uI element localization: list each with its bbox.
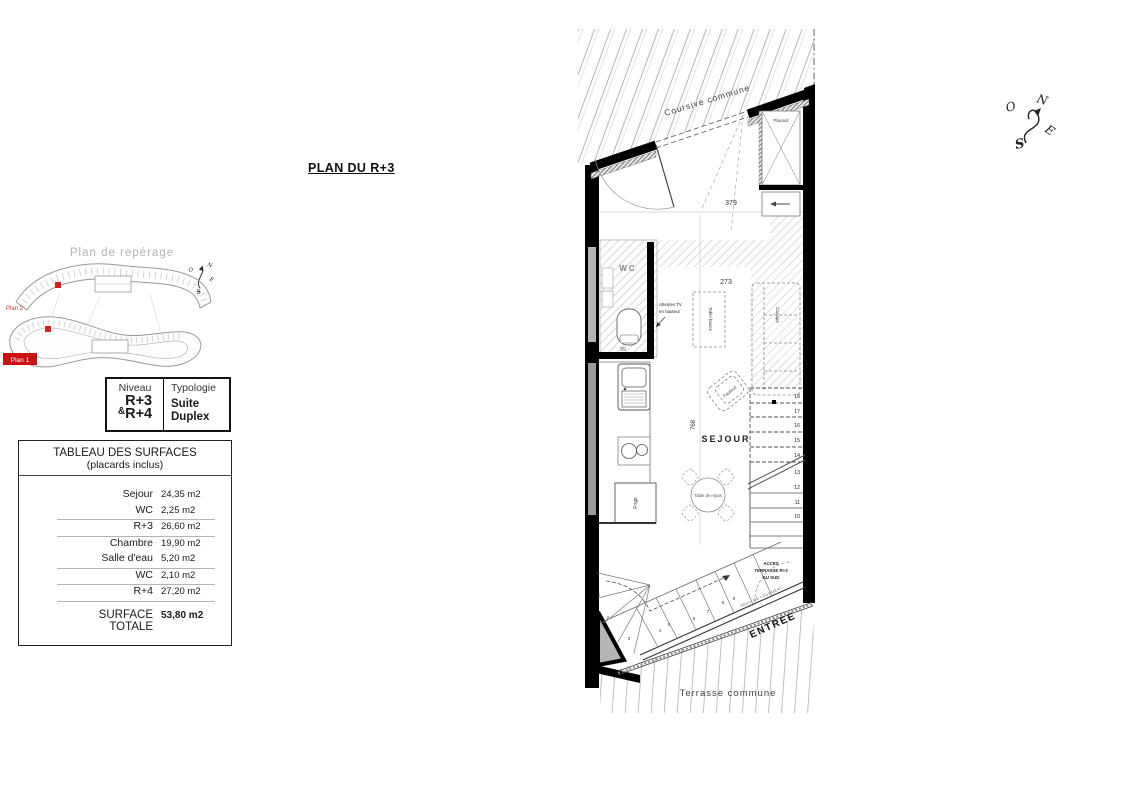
step-number: 9	[733, 596, 736, 602]
entry-door-leaf	[656, 145, 674, 207]
floor-plan: WC 99 Placard	[578, 25, 823, 715]
wc-fixture-shelf	[602, 268, 613, 288]
page-title: PLAN DU R+3	[308, 161, 395, 175]
reperage-mini-plan: Plan de repérage N O E S	[0, 240, 250, 380]
level-ampersand: &	[118, 406, 125, 417]
table-row: Salle d'eau5,20 m2	[57, 552, 215, 569]
table-row: WC2,10 m2	[57, 569, 215, 586]
step-number: 17	[794, 409, 800, 415]
dim-768: 768	[691, 419, 697, 430]
step-number: 4	[659, 628, 662, 634]
sightline-2	[731, 115, 743, 232]
surfaces-total-value: 53,80 m2	[161, 610, 203, 621]
right-wall	[803, 91, 815, 603]
unit-marker-plan1	[45, 326, 51, 332]
stair-top-hatch	[750, 360, 803, 388]
svg-text:AU SUD: AU SUD	[763, 575, 780, 580]
step-number: 3	[628, 636, 631, 642]
window-wc	[588, 247, 596, 342]
wc-wall-bottom	[597, 352, 654, 359]
wc-fixture-shelf2	[602, 291, 613, 307]
walkline-arrow-icon	[722, 575, 730, 581]
sightline-1	[701, 115, 743, 211]
lower-step-numbers: 1 2 3 4 5 6 7 8 9	[598, 592, 736, 642]
upper-staircase: 18 17 16 15 14 13 12 11 10	[748, 388, 805, 548]
plan1-badge: Plan 1	[3, 353, 37, 365]
typologie-header: Typologie	[171, 382, 229, 394]
step-number: 16	[794, 423, 800, 429]
svg-text:O: O	[188, 267, 194, 274]
step-number: 1	[598, 592, 601, 598]
table-row: R+427,20 m2	[57, 585, 215, 602]
step-number: 8	[722, 600, 725, 606]
reperage-building-plan2	[16, 264, 211, 310]
table-row: WC2,25 m2	[57, 504, 215, 521]
plan2-label: Plan 2	[6, 306, 24, 312]
step-number: 5	[668, 622, 671, 628]
window-kitchen	[588, 363, 596, 515]
svg-text:E: E	[207, 276, 214, 284]
typology-line1: Suite	[171, 398, 229, 411]
unit-marker-plan2	[55, 282, 61, 288]
attentes-tv-note: Attentes TV en hauteur	[656, 302, 682, 327]
armchair: Fauteuil	[705, 369, 751, 413]
table-row: R+326,60 m2	[57, 520, 215, 537]
surfaces-total-row: SURFACE TOTALE 53,80 m2	[57, 609, 215, 633]
reperage-building-plan1	[10, 317, 201, 367]
dining-table: Table de repas	[681, 468, 735, 522]
svg-text:Attentes TV: Attentes TV	[659, 302, 682, 307]
step-number: 2	[607, 615, 610, 621]
page-canvas: PLAN DU R+3 Plan de repérage N O E S	[0, 0, 1139, 800]
surfaces-total-label: SURFACE TOTALE	[57, 609, 153, 633]
table-repas-label: Table de repas	[694, 493, 721, 498]
step-number: 7	[707, 609, 710, 615]
wc-label: WC	[619, 264, 636, 273]
compass-icon: N O E S	[1000, 85, 1070, 160]
cooktop	[618, 437, 650, 465]
dim-273: 273	[720, 279, 732, 286]
compass-n: N	[1034, 91, 1050, 108]
level-typology-table: Niveau & R+3 R+4 Typologie Suite Duplex	[105, 377, 231, 432]
typology-line2: Duplex	[171, 411, 229, 424]
level-column: Niveau & R+3 R+4	[107, 379, 164, 430]
dim-379: 379	[725, 200, 737, 207]
svg-text:Plan 1: Plan 1	[11, 357, 30, 364]
svg-text:en hauteur: en hauteur	[659, 309, 681, 314]
reperage-title: Plan de repérage	[70, 247, 174, 259]
soffit-hatch	[657, 240, 803, 267]
step-number: 13	[794, 470, 800, 476]
step-number: 12	[794, 485, 800, 491]
step-number: 18	[794, 394, 800, 400]
level-r4: R+4	[125, 408, 152, 421]
step-number: 6	[693, 616, 696, 622]
compass-o: O	[1004, 99, 1017, 115]
table-row: Chambre19,90 m2	[57, 537, 215, 553]
table-basse-label: Table basse	[708, 307, 713, 332]
coffee-table: Table basse	[693, 292, 725, 347]
typology-column: Typologie Suite Duplex	[164, 379, 229, 430]
surfaces-title: TABLEAU DES SURFACES	[19, 447, 231, 459]
step-number: 11	[795, 500, 800, 506]
table-row: Sejour24,35 m2	[57, 488, 215, 504]
terrasse-label: Terrasse commune	[680, 688, 777, 699]
acces-terrasse-note: ACCES TERRASSE R+3 AU SUD	[754, 561, 788, 580]
step-number: 15	[794, 438, 800, 444]
toilet-tank	[620, 335, 638, 343]
frigo-label: Frigo	[633, 497, 639, 509]
placard-closet: Placard	[759, 111, 803, 216]
reperage-compass-icon: N O E S	[188, 262, 214, 296]
kitchen-block: Frigo	[598, 362, 656, 523]
surfaces-table: TABLEAU DES SURFACES (placards inclus) S…	[18, 440, 232, 646]
svg-text:ACCES: ACCES	[763, 561, 778, 566]
sejour-label: SEJOUR	[701, 434, 750, 444]
fauteuil-label: Fauteuil	[722, 385, 738, 399]
canape-label: Canapé	[775, 307, 780, 323]
surfaces-subtitle: (placards inclus)	[19, 459, 231, 471]
surfaces-rows: Sejour24,35 m2 WC2,25 m2 R+326,60 m2 Cha…	[57, 488, 215, 633]
placard-label: Placard	[774, 118, 789, 123]
dim-99: 99	[620, 347, 626, 353]
compass-e: E	[1041, 121, 1057, 138]
step-number: 14	[794, 453, 800, 459]
surfaces-header: TABLEAU DES SURFACES (placards inclus)	[19, 441, 231, 476]
wc-wall-right	[647, 242, 654, 358]
svg-text:N: N	[205, 262, 213, 270]
step-number: 10	[794, 514, 800, 520]
svg-text:TERRASSE R+3: TERRASSE R+3	[754, 568, 788, 573]
